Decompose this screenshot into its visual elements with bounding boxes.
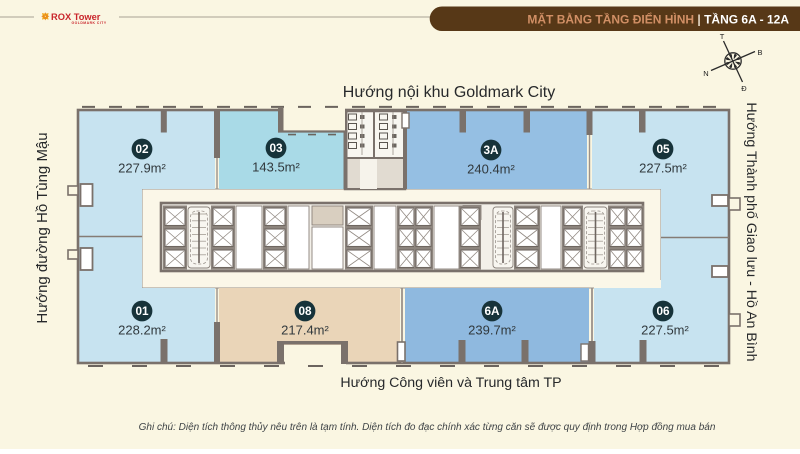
svg-text:Hướng Công viên và Trung tâm T: Hướng Công viên và Trung tâm TP xyxy=(340,375,561,391)
svg-text:GOLDMARK CITY: GOLDMARK CITY xyxy=(72,21,107,25)
svg-text:228.2m²: 228.2m² xyxy=(118,323,166,338)
svg-text:Hướng nội khu Goldmark City: Hướng nội khu Goldmark City xyxy=(343,84,555,101)
svg-text:227.9m²: 227.9m² xyxy=(118,161,166,176)
svg-text:05: 05 xyxy=(656,142,670,156)
svg-text:Ghi chú: Diện tích thông thủy: Ghi chú: Diện tích thông thủy nêu trên l… xyxy=(139,421,716,433)
svg-text:01: 01 xyxy=(135,304,149,318)
svg-text:Hướng Thành phố Giao lưu - Hồ: Hướng Thành phố Giao lưu - Hồ An Bình xyxy=(743,102,759,361)
svg-text:MẶT BẰNG TẦNG ĐIỂN HÌNH | TẦNG: MẶT BẰNG TẦNG ĐIỂN HÌNH | TẦNG 6A - 12A xyxy=(527,11,789,26)
svg-text:240.4m²: 240.4m² xyxy=(467,162,515,177)
svg-text:03: 03 xyxy=(269,141,283,155)
svg-text:06: 06 xyxy=(656,304,670,318)
svg-text:Đ: Đ xyxy=(741,84,747,93)
svg-text:N: N xyxy=(703,69,708,78)
svg-text:B: B xyxy=(757,48,762,57)
svg-text:3A: 3A xyxy=(483,143,499,157)
svg-text:02: 02 xyxy=(135,142,149,156)
svg-text:227.5m²: 227.5m² xyxy=(641,323,689,338)
svg-text:239.7m²: 239.7m² xyxy=(468,323,516,338)
svg-text:Hướng đường Hồ Tùng Mậu: Hướng đường Hồ Tùng Mậu xyxy=(34,132,51,323)
svg-text:08: 08 xyxy=(298,304,312,318)
svg-text:T: T xyxy=(720,32,725,41)
svg-text:217.4m²: 217.4m² xyxy=(281,323,329,338)
svg-text:143.5m²: 143.5m² xyxy=(252,160,300,175)
svg-text:6A: 6A xyxy=(484,304,500,318)
svg-text:227.5m²: 227.5m² xyxy=(639,161,687,176)
